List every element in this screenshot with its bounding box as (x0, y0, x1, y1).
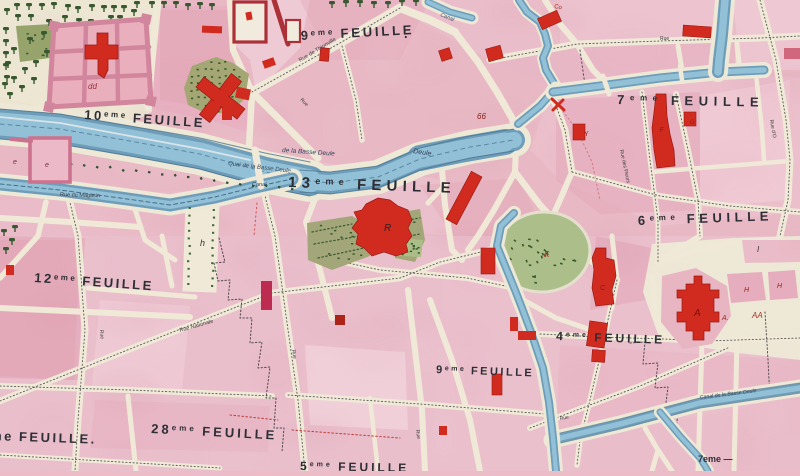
svg-text:Rue: Rue (660, 36, 669, 42)
svg-text:66: 66 (477, 112, 486, 121)
svg-text:Rue: Rue (98, 330, 105, 340)
svg-text:F: F (660, 128, 664, 134)
svg-text:A: A (693, 308, 701, 319)
svg-text:e: e (45, 162, 49, 169)
svg-text:K: K (544, 250, 550, 259)
svg-text:Y: Y (584, 131, 589, 138)
svg-text:7eme —: 7eme — (698, 454, 733, 464)
svg-text:Canal: Canal (252, 182, 267, 188)
svg-text:A.: A. (721, 315, 729, 322)
svg-text:AA: AA (751, 311, 763, 320)
svg-text:h: h (200, 238, 205, 248)
svg-text:e: e (13, 159, 17, 166)
svg-text:R: R (384, 223, 391, 234)
svg-text:.: . (404, 26, 408, 41)
svg-text:dd: dd (88, 82, 97, 91)
svg-text:G: G (690, 120, 695, 126)
